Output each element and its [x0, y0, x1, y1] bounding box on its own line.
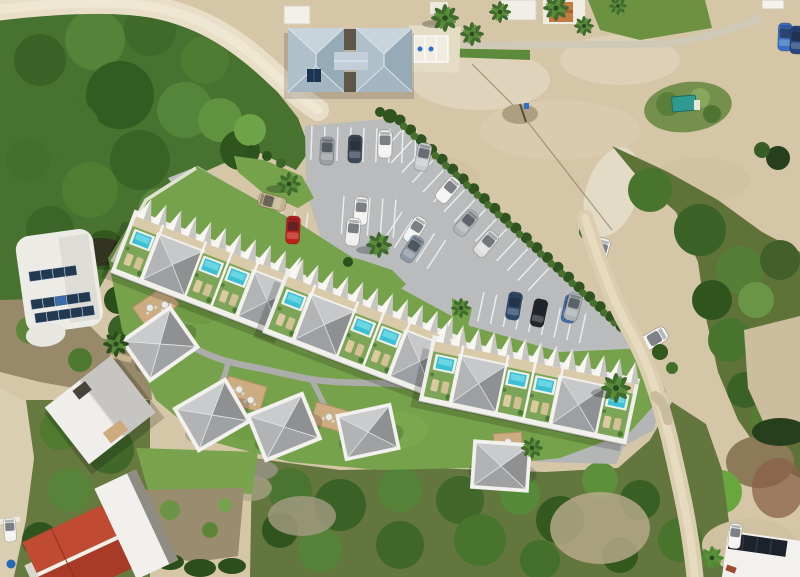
hedge-bush [375, 107, 385, 117]
bush [652, 344, 668, 360]
yard-hedge [218, 558, 246, 574]
solar-panel [82, 306, 94, 316]
bush [666, 362, 678, 374]
scrub-bush [378, 468, 422, 512]
solar-panel [78, 292, 90, 302]
bush [754, 142, 770, 158]
solar-panel [43, 297, 55, 307]
solar-panel [29, 271, 41, 281]
tree-canopy [6, 138, 50, 182]
island-bush [703, 105, 721, 123]
aerial-site-render: Aerial drone photo with rendered site pl… [0, 0, 800, 577]
handicap-symbol [429, 47, 434, 52]
shed-northwest [284, 6, 310, 24]
scrub-bush [674, 204, 726, 256]
car-navy [790, 26, 800, 54]
solar-panel [66, 294, 78, 304]
solar-panel [59, 309, 71, 319]
palm-tree [277, 172, 301, 196]
scrub-bush [692, 280, 732, 320]
scrub-bush [454, 514, 506, 566]
car-white [345, 217, 362, 246]
solar-panel [47, 311, 59, 321]
yard-grass-spot [160, 500, 180, 520]
teal-utility-box [671, 95, 696, 112]
scrub-bush [738, 282, 774, 318]
palm-tree [451, 298, 471, 318]
scrub-bush [48, 468, 92, 512]
sand-gap [268, 496, 336, 536]
palm-tree [489, 1, 511, 23]
palm-tree [431, 4, 459, 32]
tree-canopy [62, 162, 118, 218]
car-darkblue [348, 135, 363, 163]
car-red [285, 216, 300, 245]
solar-panel [35, 312, 47, 322]
tree-canopy [110, 130, 170, 190]
yard-lawn [136, 448, 258, 494]
car-corner-white [727, 523, 742, 549]
palm-tree [460, 22, 484, 46]
yard-grass-spot [202, 522, 218, 538]
tree-canopy [14, 34, 66, 86]
palm-tree [601, 373, 631, 403]
clubhouse-courtyard [344, 72, 356, 92]
car-gray [320, 137, 335, 165]
island-bush [262, 151, 272, 161]
hedge-bush [383, 109, 397, 123]
island-bush [246, 145, 258, 157]
shrub [68, 348, 92, 372]
solar-panel-blue [55, 295, 67, 305]
car-white [378, 130, 392, 158]
yard-grass-spot [218, 498, 232, 512]
scrub-bush [760, 240, 800, 280]
solar-panel [41, 269, 53, 279]
tree-canopy [65, 10, 125, 70]
barrel-blue [7, 560, 16, 569]
solar-panel [53, 267, 65, 277]
palm-tree [574, 16, 594, 36]
utility-box-white [694, 100, 700, 110]
sand-gap [550, 492, 650, 564]
clubhouse-courtyard [344, 29, 356, 50]
truck-white [3, 518, 17, 543]
scrub-bush [376, 521, 424, 569]
handicap-symbol [418, 47, 423, 52]
yard-hedge [184, 559, 216, 577]
palm-tree [366, 232, 392, 258]
solar-panel [65, 266, 77, 276]
scene-canvas [0, 0, 800, 577]
scrub-bush [628, 168, 672, 212]
solar-panel [70, 307, 82, 317]
island-bush [276, 158, 286, 168]
solar-panel [31, 299, 43, 309]
island-bush [343, 257, 353, 267]
tree-canopy [234, 114, 266, 146]
palm-tree-dark [103, 331, 129, 357]
canopy-top-right [762, 0, 784, 9]
palm-tree [521, 437, 543, 459]
tree-canopy [40, 100, 100, 160]
pole-flag-blue [524, 103, 529, 109]
palm-tree [700, 546, 724, 570]
